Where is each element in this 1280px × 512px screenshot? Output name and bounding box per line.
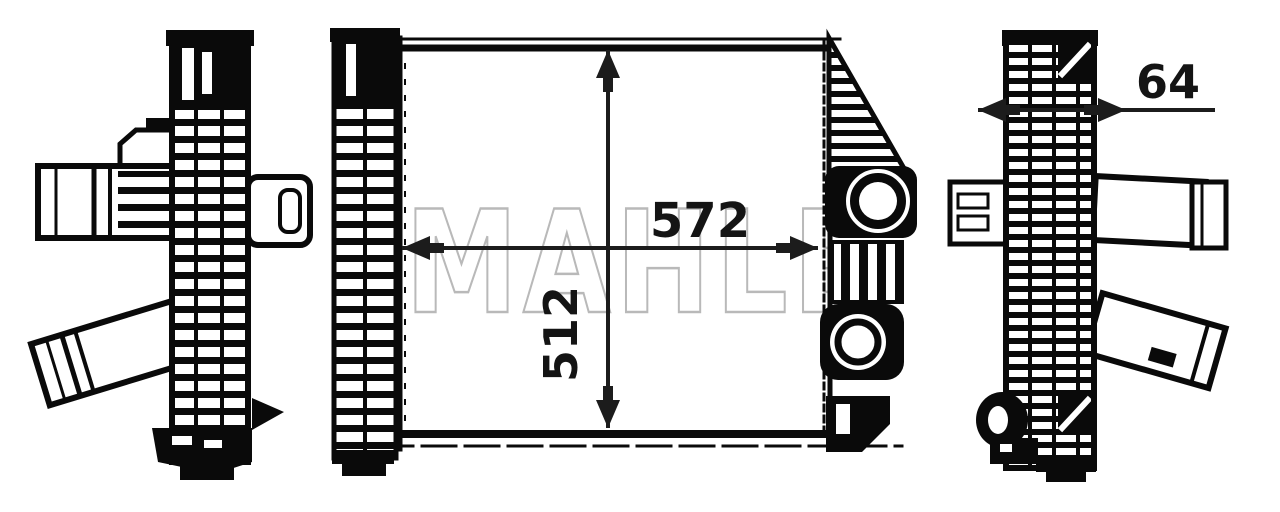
watermark-text: MAHLE <box>405 181 875 346</box>
left-view-right-bracket <box>248 177 310 245</box>
right-view-foot <box>1036 456 1096 482</box>
left-view-core <box>166 30 254 462</box>
watermark: MAHLE <box>405 181 875 346</box>
front-view-top-port <box>825 166 917 238</box>
dimension-width-label: 572 <box>650 193 750 249</box>
front-view-left-member <box>330 28 400 458</box>
drawing-canvas: MAHLE <box>0 0 1280 512</box>
dimension-height-label: 512 <box>534 286 588 382</box>
left-view-lower-pipe <box>31 300 193 405</box>
front-view-bottom-port <box>820 304 904 380</box>
left-view-top-pipe <box>38 166 174 238</box>
right-view-lower-pipe <box>1085 293 1225 388</box>
arrow-down-icon <box>596 386 620 428</box>
arrow-up-icon <box>596 50 620 92</box>
dimension-depth-label: 64 <box>1136 55 1200 109</box>
intercooler-drawing: MAHLE <box>0 0 1280 512</box>
right-view-left-flange <box>950 182 1008 244</box>
front-view-right-foot <box>826 396 890 452</box>
front-view-taper-bracket <box>829 38 906 172</box>
front-view-mid-flange <box>832 242 902 302</box>
left-side-view <box>31 30 310 480</box>
pipe-hatch <box>118 171 174 233</box>
left-view-upper-bracket <box>120 130 174 166</box>
right-view-top-pipe <box>1092 176 1226 248</box>
front-view-left-foot <box>332 450 394 476</box>
